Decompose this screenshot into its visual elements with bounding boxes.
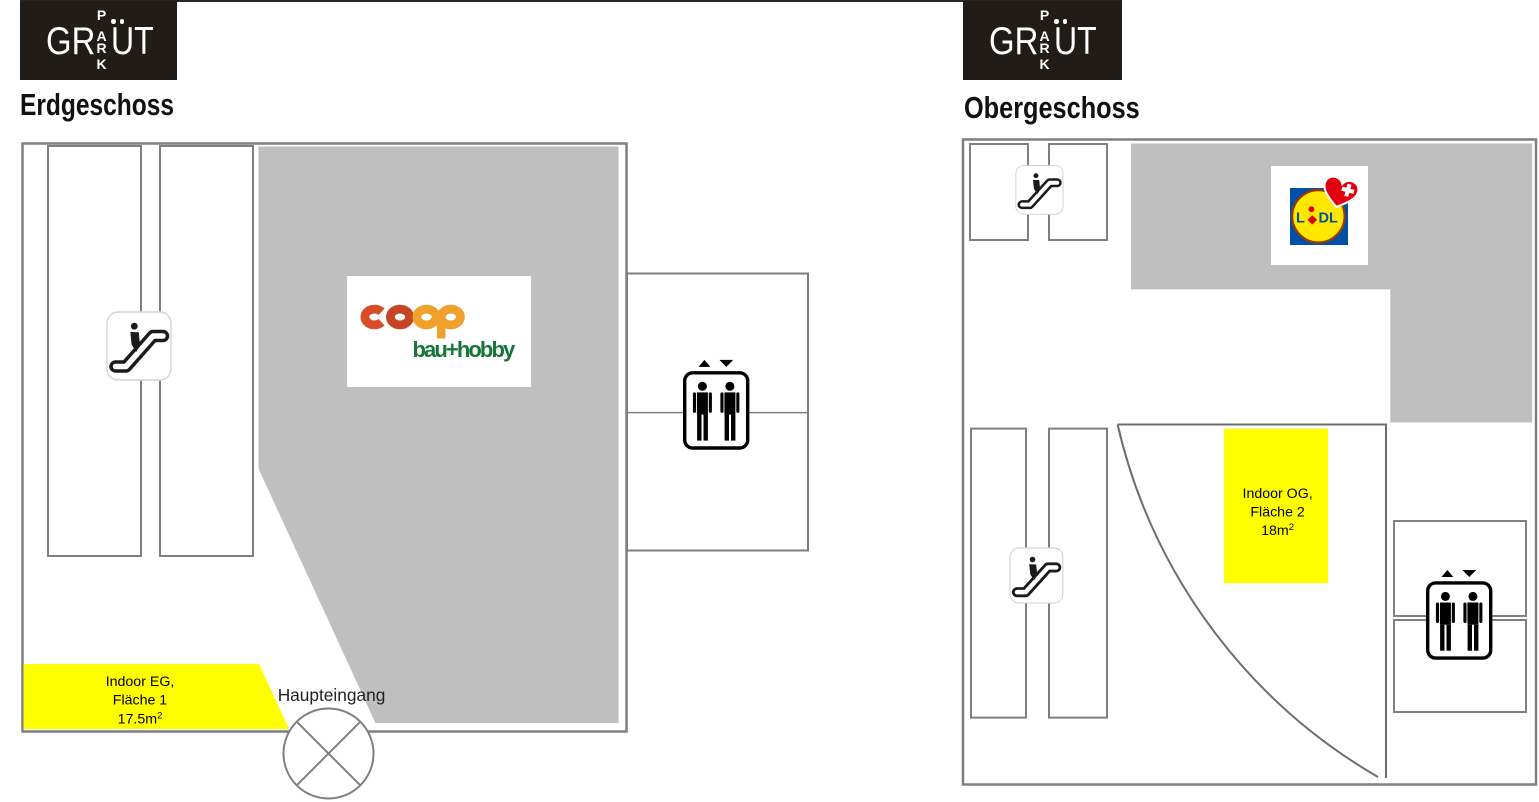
svg-text:Fläche 2: Fläche 2 [1250, 505, 1305, 521]
svg-text:Fläche 1: Fläche 1 [113, 692, 168, 708]
svg-text:17.5m2: 17.5m2 [118, 710, 163, 728]
svg-text:DL: DL [1319, 211, 1338, 227]
svg-text:Indoor EG,: Indoor EG, [106, 674, 175, 690]
svg-text:Haupteingang: Haupteingang [278, 685, 386, 705]
svg-text:bau+hobby: bau+hobby [413, 337, 517, 362]
svg-text:L: L [1296, 211, 1305, 227]
svg-text:Indoor OG,: Indoor OG, [1243, 486, 1313, 502]
